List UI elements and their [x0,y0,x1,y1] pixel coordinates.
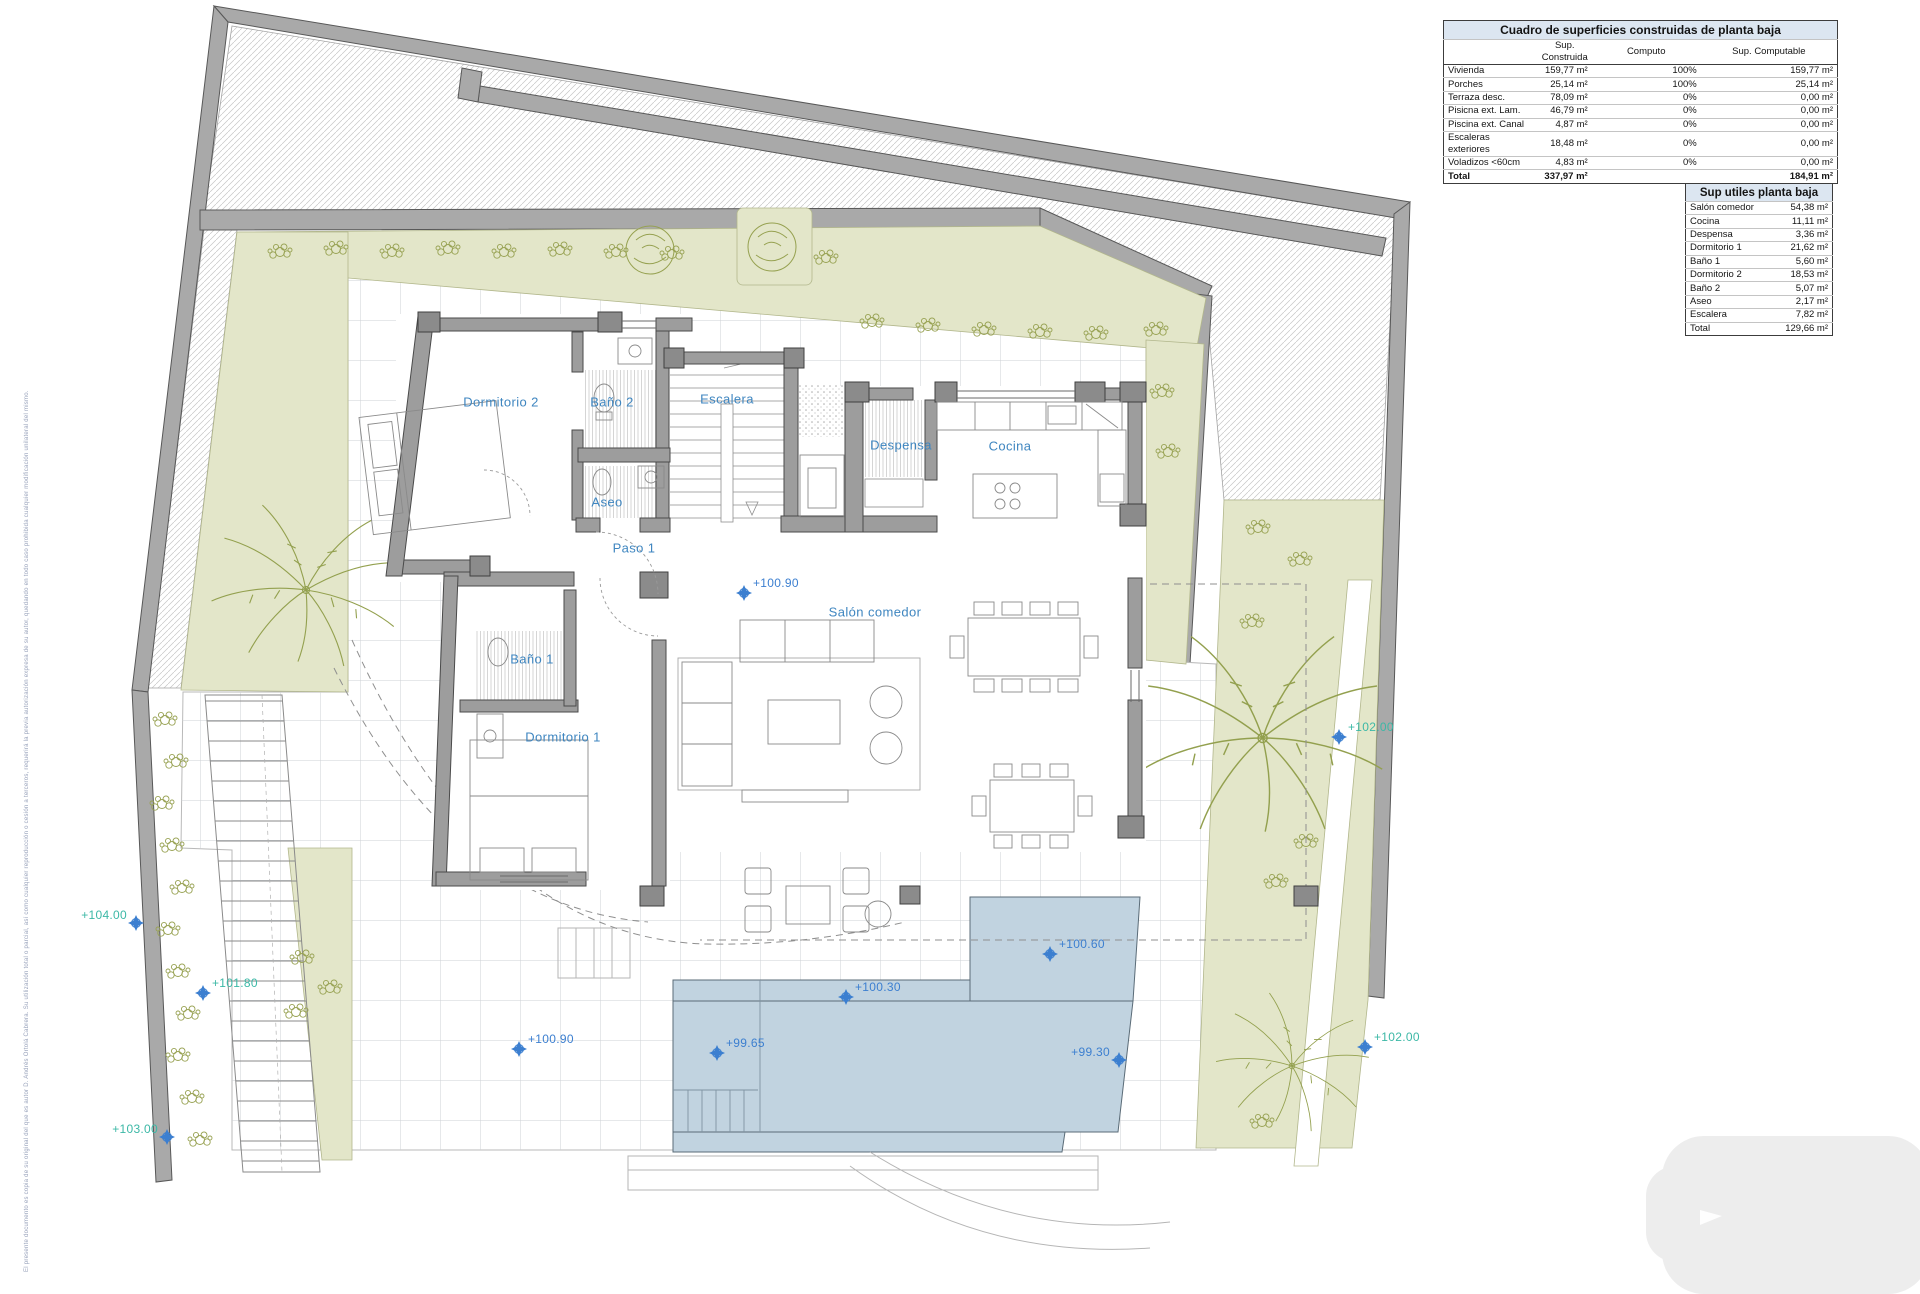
table-row: Escaleras exteriores18,48 m² 0%0,00 m² [1444,131,1838,156]
level-marker-icon [838,989,854,1005]
level-marker-icon [195,985,211,1001]
room-label-dormitorio-2: Dormitorio 2 [463,395,539,410]
table-row: Dormitorio 121,62 m² [1686,242,1833,255]
level-marker-icon [128,915,144,931]
copyright-notice: El presente documento es copia de su ori… [24,390,30,1272]
level-marker-icon [736,585,752,601]
level-marker-icon [1357,1039,1373,1055]
table-total-row: Total337,97 m² 184,91 m² [1444,170,1838,183]
level-marker-102-lower: +102.00 [1357,1039,1373,1055]
pool-top-strip [673,980,970,1001]
table-title: Cuadro de superficies construidas de pla… [1444,21,1838,40]
level-marker-icon [1042,946,1058,962]
table-row: Voladizos <60cm4,83 m² 0%0,00 m² [1444,156,1838,169]
floor-plan-sheet: { "tables": { "constructed": { "title": … [0,0,1920,1280]
table-header-row: Sup. Construida Computo Sup. Computable [1444,40,1838,65]
room-label-aseo: Aseo [591,495,622,510]
room-label-cocina: Cocina [989,439,1032,454]
room-label-despensa: Despensa [870,438,932,453]
level-marker-icon [1331,729,1347,745]
room-label-salon-comedor: Salón comedor [829,605,922,620]
level-marker-102-upper: +102.00 [1331,729,1347,745]
table-title: Sup utiles planta baja [1686,184,1833,202]
table-row: Piscina ext. Canal4,87 m² 0%0,00 m² [1444,118,1838,131]
level-marker-99-30: +99.30 [1111,1052,1127,1068]
corridor-step [458,68,482,102]
table-row: Salón comedor54,38 m² [1686,202,1833,215]
table-row: Dormitorio 218,53 m² [1686,268,1833,281]
site-plan-drawing [0,0,1920,1280]
table-row: Terraza desc.78,09 m² 0%0,00 m² [1444,91,1838,104]
table-row: Baño 25,07 m² [1686,282,1833,295]
constructed-surfaces-table: Cuadro de superficies construidas de pla… [1443,20,1838,184]
level-marker-100-90-terrace: +100.90 [511,1041,527,1057]
room-label-dormitorio-1: Dormitorio 1 [525,730,601,745]
pool-canal [673,1132,1065,1152]
level-marker-99-65: +99.65 [709,1045,725,1061]
room-label-paso-1: Paso 1 [613,541,656,556]
table-row: Pisicna ext. Lam.46,79 m² 0%0,00 m² [1444,105,1838,118]
level-marker-icon [159,1129,175,1145]
gravel-patio [798,385,847,437]
table-row: Porches25,14 m² 100%25,14 m² [1444,78,1838,91]
garden-right-column [1146,340,1204,664]
table-row: Escalera7,82 m² [1686,309,1833,322]
table-row: Baño 15,60 m² [1686,255,1833,268]
room-label-escalera: Escalera [700,392,754,407]
pool-main [673,1001,1133,1132]
useful-surfaces-table: Sup utiles planta baja Salón comedor54,3… [1685,183,1833,336]
level-marker-100-60: +100.60 [1042,946,1058,962]
level-marker-101-80: +101.80 [195,985,211,1001]
table-total-row: Total129,66 m² [1686,322,1833,335]
table-row: Aseo2,17 m² [1686,295,1833,308]
level-marker-icon [1111,1052,1127,1068]
level-marker-100-30: +100.30 [838,989,854,1005]
table-row: Vivienda159,77 m² 100%159,77 m² [1444,65,1838,78]
logo-blob-mark [1700,1210,1722,1225]
level-marker-icon [511,1041,527,1057]
table-row: Despensa3,36 m² [1686,228,1833,241]
level-marker-103: +103.00 [159,1129,175,1145]
level-marker-100-90-house: +100.90 [736,585,752,601]
table-row: Cocina11,11 m² [1686,215,1833,228]
room-label-bano-2: Baño 2 [590,395,634,410]
level-marker-icon [709,1045,725,1061]
room-label-bano-1: Baño 1 [510,652,554,667]
level-marker-104: +104.00 [128,915,144,931]
